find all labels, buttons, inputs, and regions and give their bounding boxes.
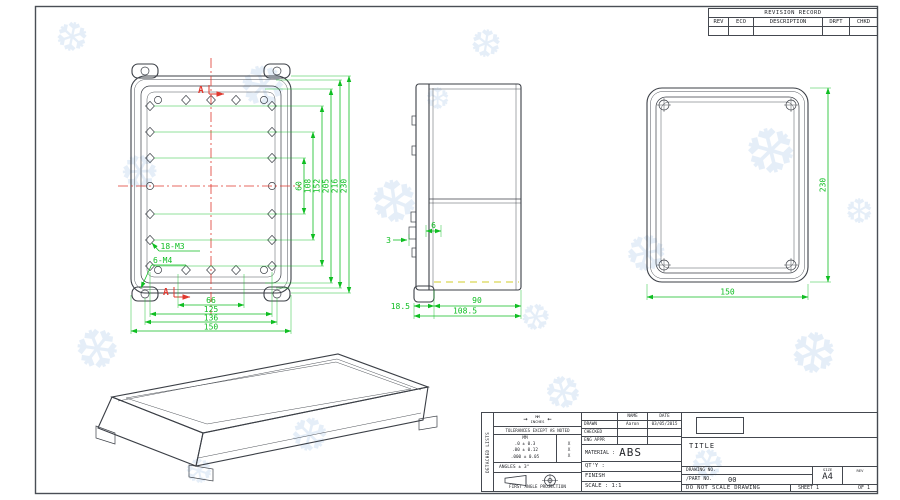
side-bosses [409,116,416,257]
revision-col-eco: ECO [729,18,754,26]
of-label: OF 1 [858,485,870,491]
svg-text:A: A [198,85,204,96]
dim-230: 230 [340,179,349,194]
size-cell: SIZE A4 [813,467,843,484]
units-inches: INCHES [531,420,545,424]
projection-label: FIRST ANGLE PROJECTION [494,485,581,490]
svg-text:18-M3: 18-M3 [161,242,185,251]
rev-cell: REV [843,467,877,484]
back-corner-screws [657,98,798,272]
revision-col-rev: REV [709,18,729,26]
drawn-label: DRAWN [582,421,618,428]
dim-18-5: 18.5 [391,302,410,311]
title-label: TITLE [682,438,877,467]
revision-col-chkd: CHKD [850,18,877,26]
dim-108-5: 108.5 [453,307,477,316]
revision-col-description: DESCRIPTION [754,18,823,26]
front-view: A A 18-M3 6-M4 [118,58,351,334]
dim-216: 216 [331,179,340,194]
dim-152: 152 [313,179,322,194]
do-not-scale-note: DO NOT SCALE DRAWING [682,485,791,491]
svg-text:6-M4: 6-M4 [153,256,172,265]
units-arrow-left: → [523,416,527,423]
title-section: TITLE DRAWING NO. /PART NO. 00 SIZE A4 R… [682,413,877,491]
part-no-label: /PART NO. [686,477,712,482]
thread-callout-m3: 18-M3 [152,242,200,251]
tolerance-marks: X X X [557,435,581,462]
units-arrow-right: ← [547,416,551,423]
dim-150: 150 [204,323,219,332]
dim-3: 3 [386,236,391,245]
name-header: NAME [618,413,648,420]
finish-label: FINISH [582,472,681,482]
sheet-cell: SHEET 1 OF 1 [791,485,877,491]
tolerance-row-3: .000 ± 0.05 [494,455,556,461]
title-block: DETACHED LISTS → MM INCHES ← TOLERANCES … [481,412,878,492]
logo-row [682,413,877,438]
tolerance-mark-3: X [557,454,581,460]
angles-tolerance: ANGLES ± 3° [494,463,581,473]
dim-6: 6 [431,221,436,230]
material-label: MATERIAL : [585,450,615,456]
part-no-value: 00 [728,476,736,484]
side-view: 3 6 18.5 90 108.5 [386,84,521,319]
side-strip-label: DETACHED LISTS [485,432,490,473]
sheet-label: SHEET 1 [798,485,819,491]
revision-col-drft: DRFT [823,18,850,26]
size-value: A4 [813,472,842,482]
tolerances-note: TOLERANCES EXCEPT AS NOTED [494,427,581,435]
drawn-name: Aaron [618,421,648,428]
dim-back-230: 230 [819,178,828,193]
dim-60: 60 [295,181,304,191]
tolerance-section: → MM INCHES ← TOLERANCES EXCEPT AS NOTED… [494,413,582,491]
approval-section: NAME DATE DRAWN Aaron 03/05/2015 CHECKED… [582,413,682,491]
dim-205: 205 [322,179,331,194]
isometric-view [96,354,437,481]
logo-placeholder-box [696,417,744,434]
dim-66: 66 [206,296,216,305]
engineering-drawing-sheet: { "colors": { "dimension_green": "#0fbe2… [0,0,900,500]
scale-label: SCALE : 1:1 [582,482,681,492]
units-row: → MM INCHES ← [494,413,581,427]
revision-record-table: REVISION RECORD REV ECO DESCRIPTION DRFT… [708,8,878,36]
checked-label: CHECKED [582,429,618,436]
title-block-side-strip: DETACHED LISTS [482,413,494,491]
dim-90: 90 [472,296,482,305]
material-value: ABS [619,446,642,459]
dim-136: 136 [204,314,219,323]
front-vertical-dimensions: 60 108 152 205 216 230 [154,76,351,293]
back-view: 230 150 [647,88,831,300]
eng-appr-label: ENG APPR [582,437,618,444]
projection-cell: FIRST ANGLE PROJECTION [494,473,581,491]
drawn-date: 03/05/2015 [648,421,681,428]
revision-empty-row [709,27,877,35]
date-header: DATE [648,413,681,420]
flange-foot [414,286,434,302]
side-bottom-dimensions: 18.5 90 108.5 [391,290,521,319]
revision-record-title: REVISION RECORD [709,9,877,18]
qty-label: QT'Y : [582,462,681,472]
svg-text:A: A [163,287,169,298]
dim-108: 108 [304,179,313,194]
dim-back-150: 150 [720,288,735,297]
drawing-no-label: DRAWING NO. [682,467,812,475]
tolerance-values: MM .0 ± 0.3 .00 ± 0.12 .000 ± 0.05 [494,435,557,462]
